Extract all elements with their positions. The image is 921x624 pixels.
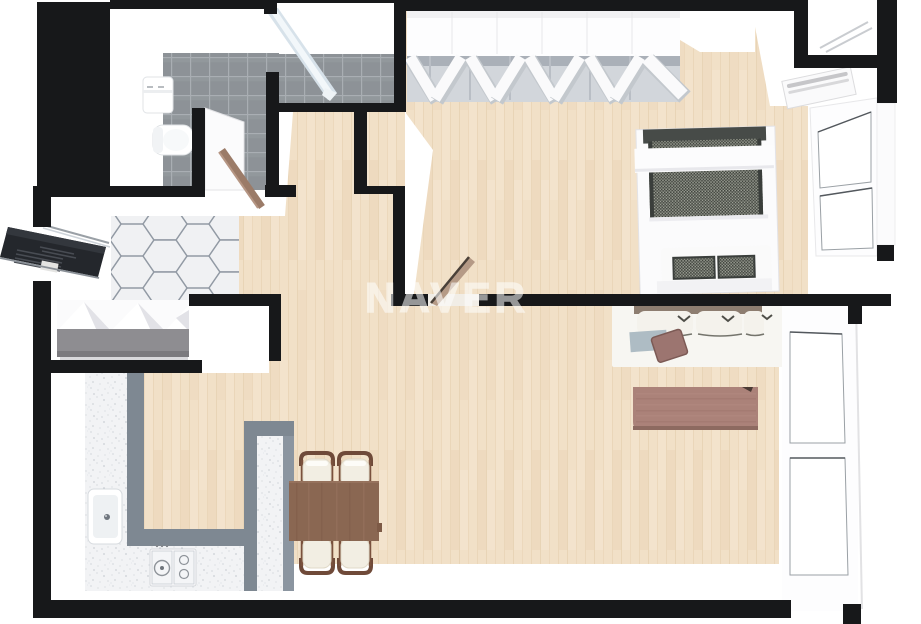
svg-text:NAVER: NAVER [365,274,529,321]
